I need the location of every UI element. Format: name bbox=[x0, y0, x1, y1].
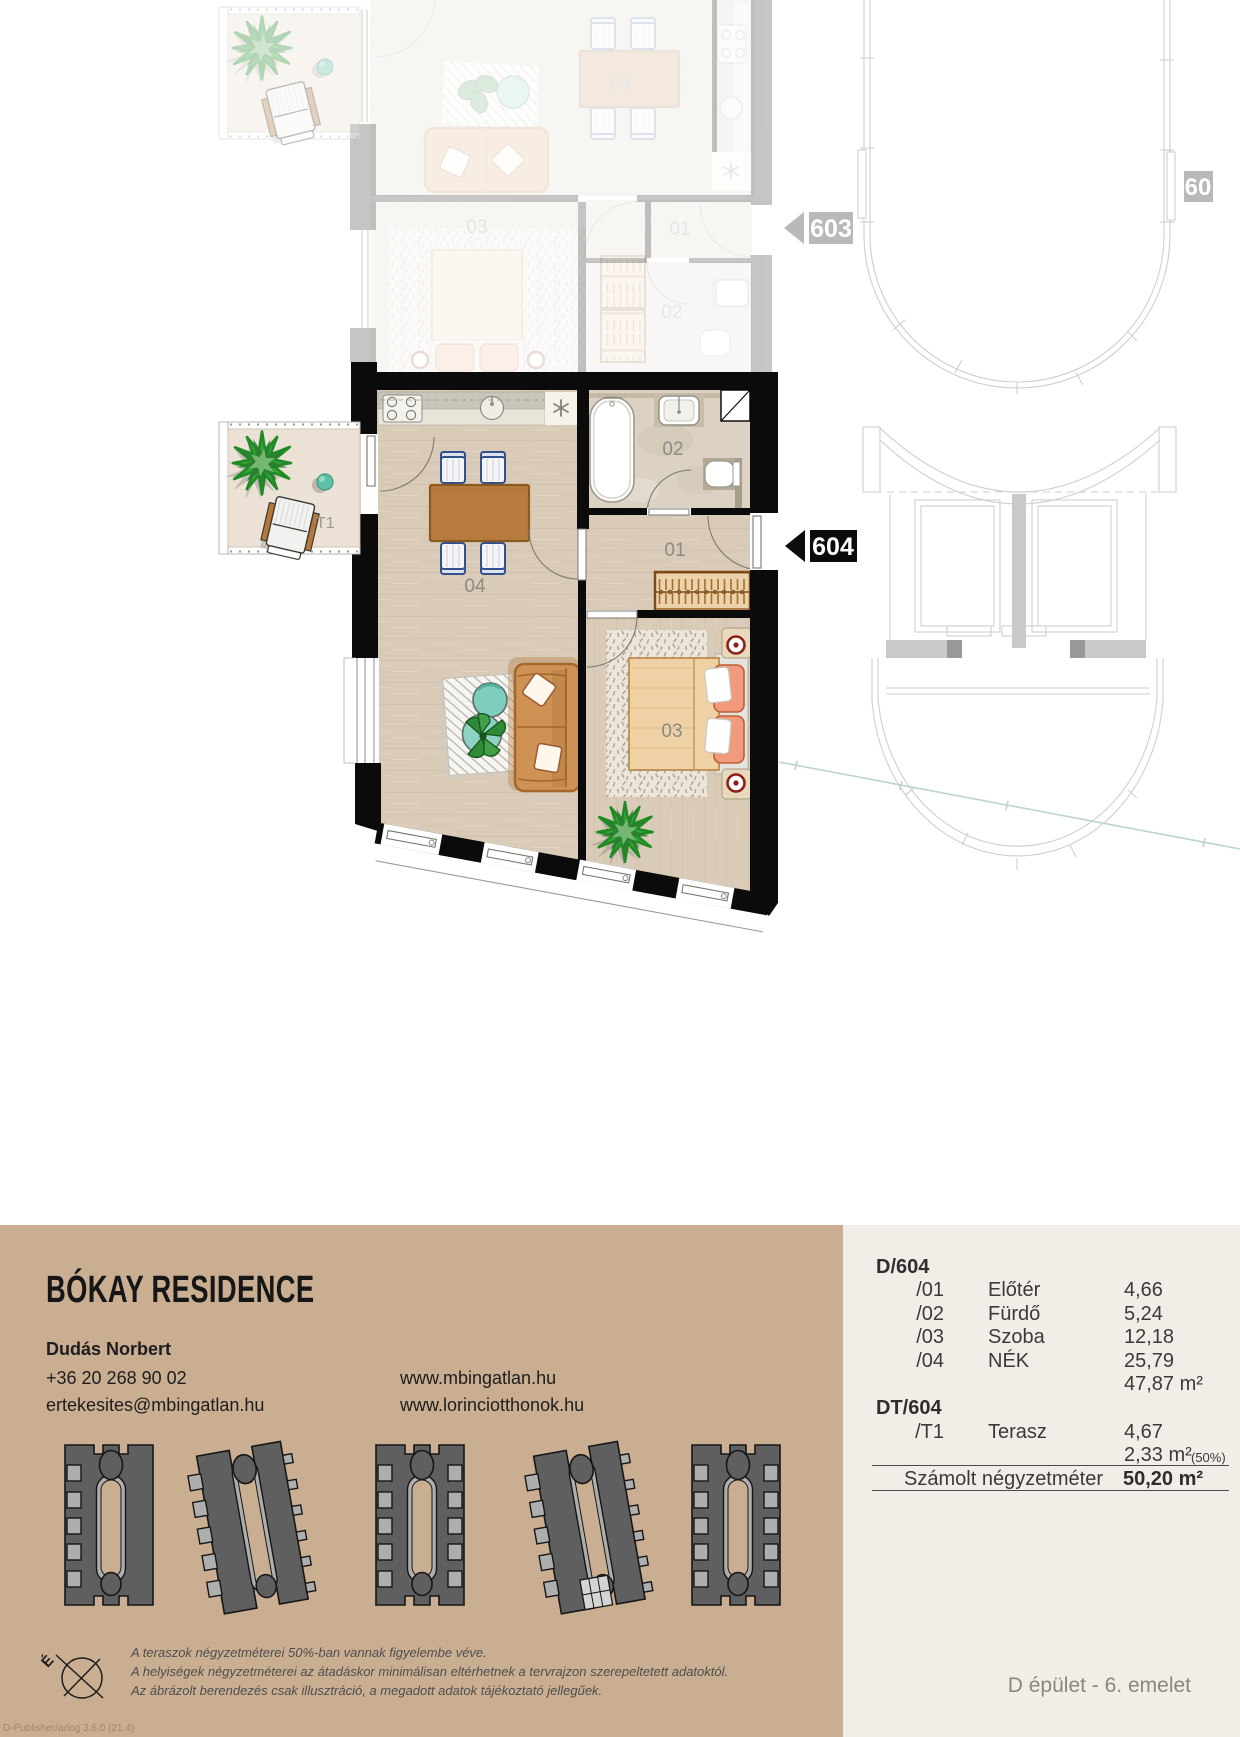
svg-text:03: 03 bbox=[661, 721, 682, 742]
svg-text:01: 01 bbox=[669, 219, 690, 240]
svg-text:T1: T1 bbox=[316, 515, 335, 532]
svg-text:02: 02 bbox=[661, 302, 682, 323]
svg-text:603: 603 bbox=[810, 215, 852, 243]
svg-text:60: 60 bbox=[1185, 174, 1212, 201]
svg-text:04: 04 bbox=[609, 74, 631, 95]
svg-text:03: 03 bbox=[466, 217, 487, 238]
svg-text:01: 01 bbox=[664, 540, 685, 561]
svg-text:É: É bbox=[38, 1652, 57, 1671]
svg-text:04: 04 bbox=[464, 576, 486, 597]
svg-text:02: 02 bbox=[662, 439, 683, 460]
svg-text:604: 604 bbox=[812, 533, 854, 561]
